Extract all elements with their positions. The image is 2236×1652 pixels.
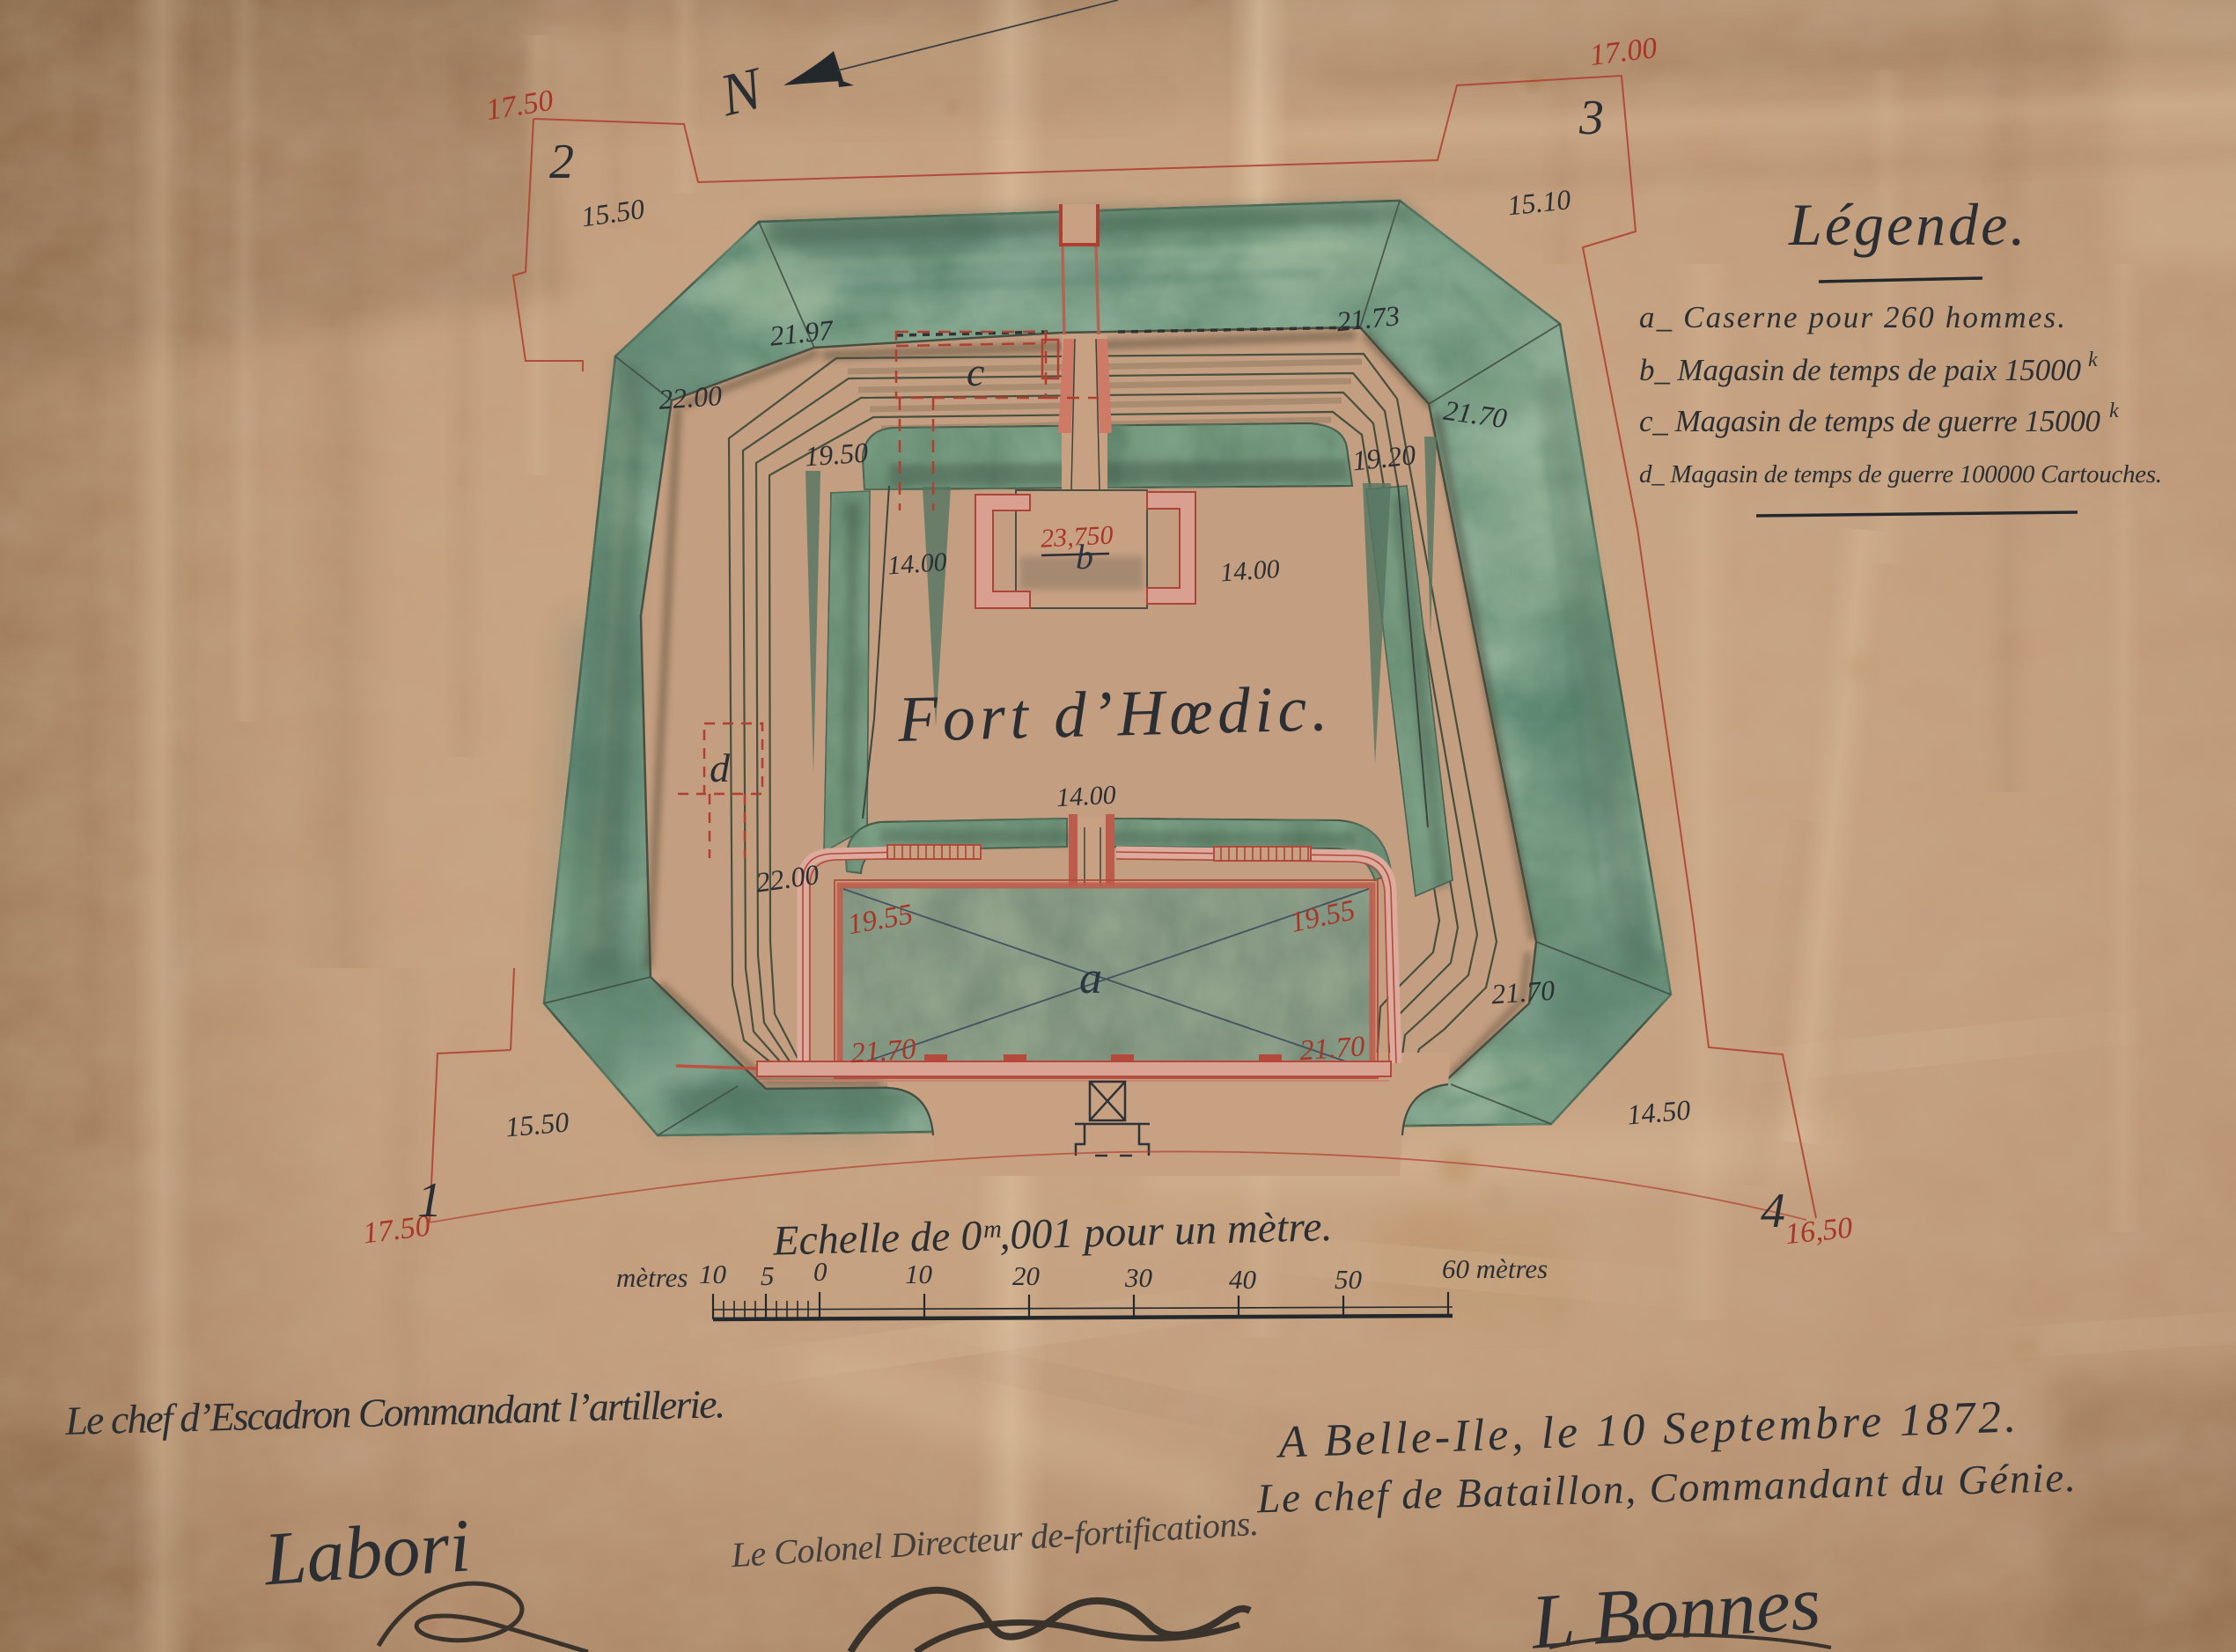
svg-text:21.70: 21.70 — [850, 1033, 917, 1069]
svg-text:10: 10 — [905, 1259, 933, 1289]
svg-text:14.00: 14.00 — [886, 547, 948, 581]
svg-text:3: 3 — [1578, 91, 1604, 145]
svg-text:1: 1 — [417, 1173, 442, 1228]
svg-text:d_ Magasin de temps de guerre: d_ Magasin de temps de guerre 100000 Car… — [1639, 460, 2162, 488]
svg-text:5: 5 — [761, 1260, 775, 1291]
svg-text:d: d — [710, 745, 731, 790]
svg-text:c_ Magasin de temps de guerre: c_ Magasin de temps de guerre 15000 — [1639, 404, 2101, 438]
svg-text:21.73: 21.73 — [1335, 299, 1401, 337]
svg-text:30: 30 — [1124, 1262, 1153, 1293]
svg-text:19.20: 19.20 — [1350, 438, 1416, 476]
svg-text:b_ Magasin de temps de paix 15: b_ Magasin de temps de paix 15000 — [1639, 353, 2082, 387]
svg-text:60 mètres: 60 mètres — [1442, 1253, 1548, 1284]
svg-text:50: 50 — [1335, 1264, 1363, 1295]
svg-text:0: 0 — [813, 1256, 827, 1287]
svg-text:21.70: 21.70 — [1490, 974, 1556, 1010]
svg-text:c: c — [967, 349, 984, 394]
svg-text:19.50: 19.50 — [804, 437, 869, 473]
svg-text:14.00: 14.00 — [1219, 554, 1281, 588]
svg-text:21.97: 21.97 — [769, 313, 836, 352]
svg-text:k: k — [2088, 349, 2098, 371]
svg-text:mètres: mètres — [616, 1262, 688, 1293]
svg-text:14.00: 14.00 — [1055, 781, 1116, 812]
svg-text:Légende.: Légende. — [1788, 191, 2027, 258]
svg-text:21.70: 21.70 — [1298, 1031, 1366, 1067]
svg-text:22.00: 22.00 — [658, 379, 723, 415]
svg-text:15.50: 15.50 — [504, 1105, 570, 1142]
svg-text:k: k — [2109, 400, 2119, 422]
svg-text:40: 40 — [1229, 1264, 1257, 1295]
svg-text:15.10: 15.10 — [1506, 183, 1572, 221]
svg-text:b: b — [1076, 537, 1093, 576]
svg-text:a_ Caserne pour 260 hommes.: a_ Caserne pour 260 hommes. — [1639, 300, 2065, 334]
svg-text:14.50: 14.50 — [1626, 1093, 1692, 1130]
svg-text:10: 10 — [699, 1259, 727, 1289]
svg-text:2: 2 — [549, 135, 574, 189]
svg-text:4: 4 — [1761, 1184, 1785, 1238]
svg-text:20: 20 — [1012, 1260, 1041, 1291]
svg-text:a: a — [1079, 953, 1102, 1003]
svg-text:Labori: Labori — [260, 1502, 473, 1601]
